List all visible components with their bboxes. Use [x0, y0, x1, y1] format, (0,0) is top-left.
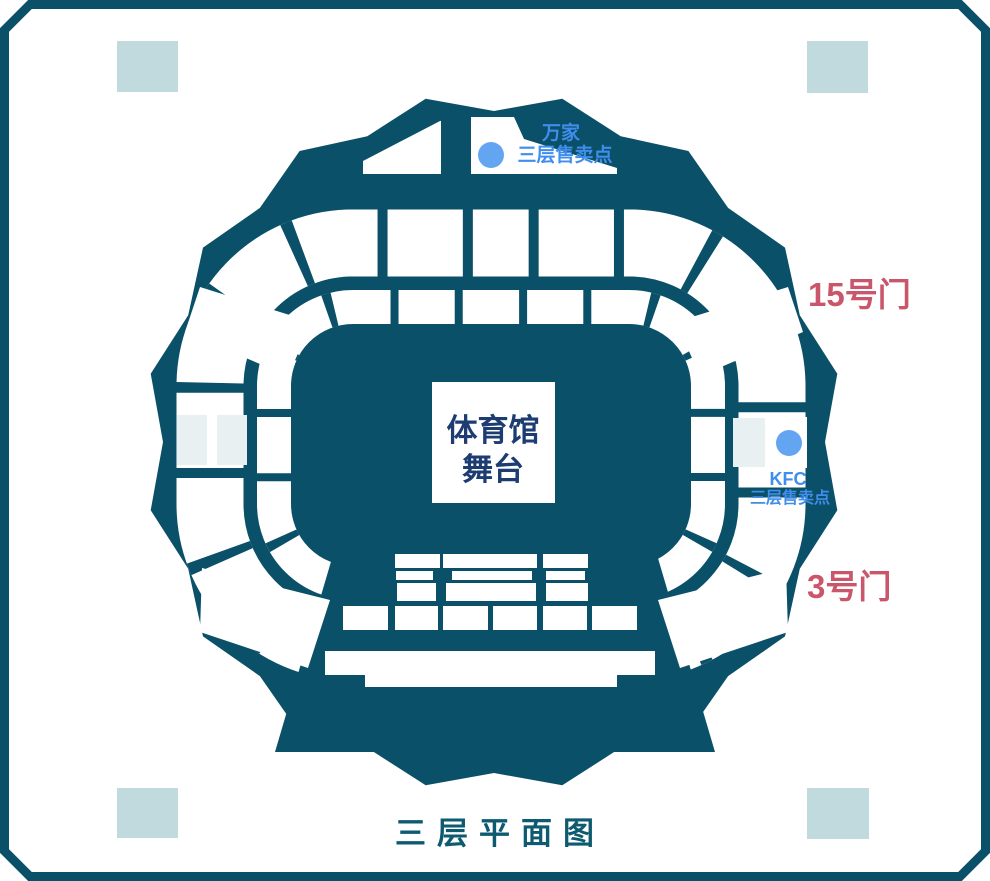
- gate-3-label[interactable]: 3号门: [807, 568, 891, 605]
- floor-row: [446, 583, 536, 601]
- floor-row: [397, 583, 436, 601]
- notch-divider: [441, 116, 471, 176]
- floor-row: [443, 606, 488, 630]
- corner-square-bottom-left: [117, 788, 178, 838]
- concession-label-kfc-name: KFC: [770, 469, 807, 489]
- floor-row: [452, 571, 532, 580]
- floor-plan-title: 三层平面图: [395, 816, 605, 851]
- concession-label-wanjia-name: 万家: [541, 121, 581, 144]
- floor-row: [325, 651, 655, 675]
- floor-row: [395, 554, 440, 568]
- gate-section-left-2: [217, 415, 247, 465]
- concession-dot-icon-wanjia[interactable]: [478, 142, 504, 168]
- stage-label-line2: 舞台: [462, 452, 524, 487]
- floor-plan-map: 体育馆 舞台 万家 三层售卖点 KFC 三层售卖点 15号门 3号门 三层平面图: [0, 0, 990, 881]
- corner-square-top-left: [117, 41, 178, 92]
- floor-row: [365, 675, 617, 687]
- floor-row: [343, 606, 388, 630]
- floor-row: [396, 571, 433, 580]
- stage-label-line1: 体育馆: [447, 413, 540, 448]
- corner-square-bottom-right: [807, 788, 869, 839]
- floor-row: [395, 606, 438, 630]
- concession-dot-icon-kfc[interactable]: [776, 430, 802, 456]
- concession-label-kfc-type: 三层售卖点: [750, 488, 830, 507]
- concession-label-wanjia-type: 三层售卖点: [517, 143, 612, 166]
- floor-row: [543, 606, 587, 630]
- floor-row: [493, 606, 537, 630]
- gate-15-label[interactable]: 15号门: [808, 276, 911, 313]
- floor-row: [543, 554, 588, 568]
- corner-square-top-right: [807, 41, 868, 93]
- floor-row: [443, 554, 537, 568]
- gate-section-right: [733, 418, 765, 467]
- gate-section-left-1: [177, 415, 207, 465]
- floor-plan-page: 体育馆 舞台 万家 三层售卖点 KFC 三层售卖点 15号门 3号门 三层平面图: [0, 0, 990, 881]
- floor-row: [546, 571, 585, 580]
- floor-row: [592, 606, 637, 630]
- floor-row: [546, 583, 588, 601]
